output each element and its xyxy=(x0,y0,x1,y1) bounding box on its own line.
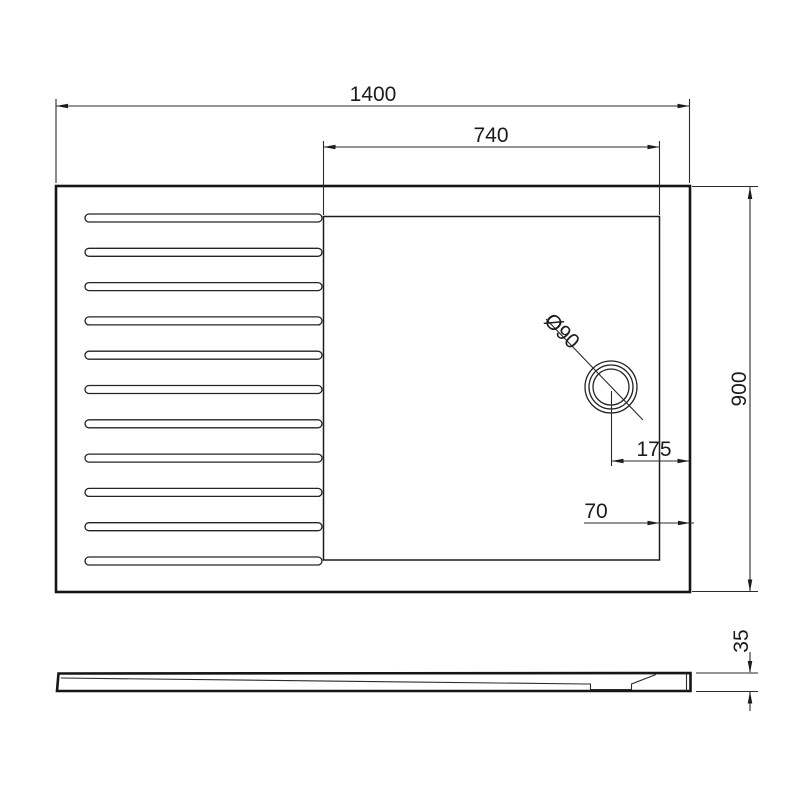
dim-175-arrow-right xyxy=(678,459,690,464)
side-view-drain-recess xyxy=(586,675,656,690)
dim-drain-offset: 175 xyxy=(612,391,690,466)
side-view-floor-slope xyxy=(61,678,586,684)
anti-slip-ridge xyxy=(85,283,322,291)
dim-1400-arrow-right xyxy=(678,104,690,109)
dim-70-label: 70 xyxy=(584,500,607,523)
dim-740-arrow-left xyxy=(324,145,336,150)
dim-175-arrow-left xyxy=(612,459,624,464)
dim-shower-area-width: 740 xyxy=(324,124,660,215)
anti-slip-ridge xyxy=(85,488,322,496)
shower-tray-drawing: 1400 740 900 Ø90 175 xyxy=(0,0,800,800)
dim-1400-arrow-left xyxy=(56,104,68,109)
dim-900-arrow-bottom xyxy=(748,580,753,592)
dim-overall-depth: 900 xyxy=(692,187,758,592)
dim-70-arrow-inner xyxy=(648,521,660,526)
dim-1400-label: 1400 xyxy=(350,83,397,106)
anti-slip-ridge xyxy=(85,454,322,462)
anti-slip-ridge xyxy=(85,386,322,394)
shower-area-outline xyxy=(324,217,660,561)
dim-35-arrow-up xyxy=(748,692,753,704)
dim-ledge-width: 70 xyxy=(584,500,694,525)
dim-overall-width: 1400 xyxy=(56,83,690,183)
anti-slip-ridge xyxy=(85,351,322,359)
anti-slip-ridge xyxy=(85,317,322,325)
dim-740-label: 740 xyxy=(473,124,508,147)
dim-35-label: 35 xyxy=(730,629,753,652)
anti-slip-ridge xyxy=(85,248,322,256)
top-view xyxy=(56,186,690,592)
technical-drawing-page: 1400 740 900 Ø90 175 xyxy=(0,0,800,800)
anti-slip-ridge xyxy=(85,523,322,531)
dim-drain-diameter-label: Ø90 xyxy=(539,309,583,353)
side-view xyxy=(57,673,691,691)
anti-slip-ridges xyxy=(85,214,322,565)
dim-900-label: 900 xyxy=(728,371,751,406)
dim-35-arrow-down xyxy=(748,661,753,673)
anti-slip-ridge xyxy=(85,420,322,428)
dim-tray-thickness: 35 xyxy=(696,629,758,711)
dim-70-arrow-outer xyxy=(678,521,690,526)
anti-slip-ridge xyxy=(85,214,322,222)
dim-900-arrow-top xyxy=(748,187,753,199)
dim-175-label: 175 xyxy=(636,438,671,461)
anti-slip-ridge xyxy=(85,557,322,565)
dim-740-arrow-right xyxy=(648,145,660,150)
